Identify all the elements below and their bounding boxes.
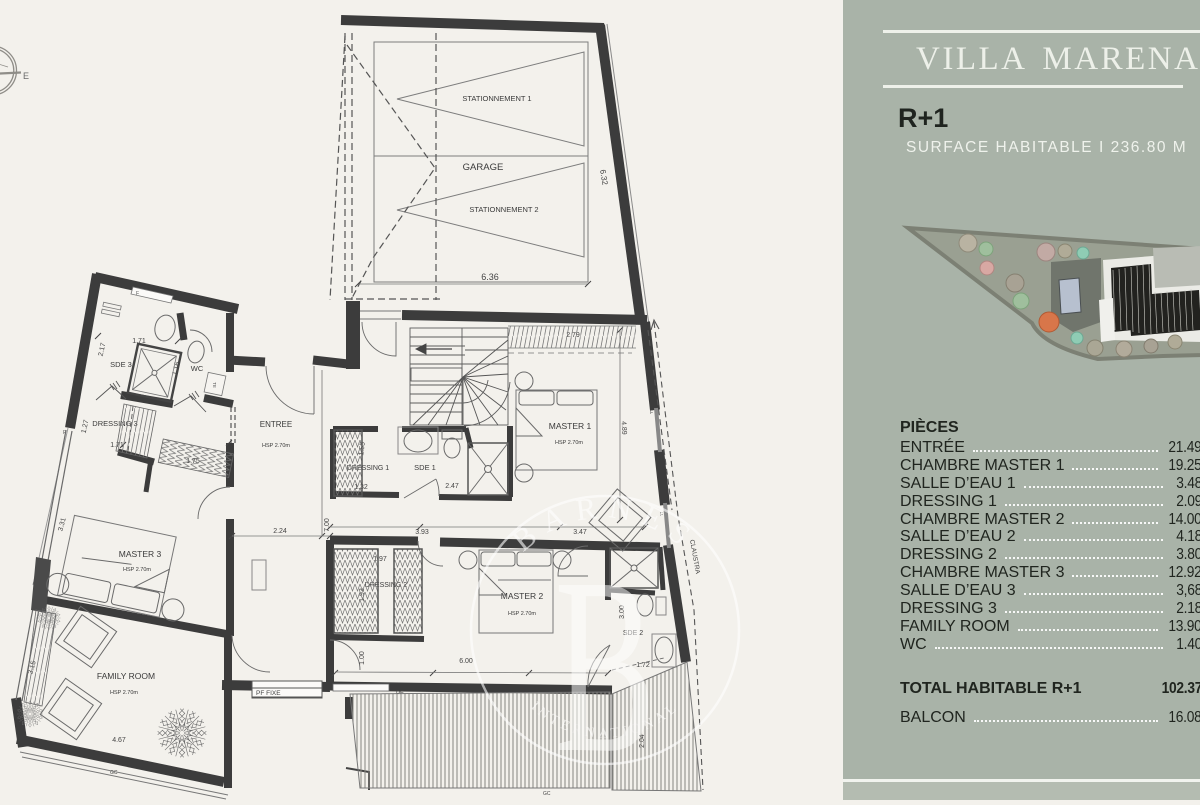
- svg-text:2.47: 2.47: [445, 483, 459, 490]
- svg-text:STATIONNEMENT 1: STATIONNEMENT 1: [462, 94, 531, 103]
- svg-text:1.00: 1.00: [359, 651, 366, 665]
- svg-text:HSP 2.70m: HSP 2.70m: [110, 690, 138, 696]
- svg-text:HSP 2.70m: HSP 2.70m: [262, 443, 290, 449]
- svg-text:E: E: [23, 71, 29, 81]
- svg-text:ENTREE: ENTREE: [260, 420, 292, 429]
- svg-text:SDE 1: SDE 1: [414, 463, 436, 472]
- svg-text:SDE 3: SDE 3: [110, 360, 132, 369]
- svg-text:MASTER 1: MASTER 1: [549, 421, 592, 431]
- svg-text:TE: TE: [212, 382, 217, 388]
- svg-text:MASTER 2: MASTER 2: [501, 591, 544, 601]
- svg-text:FAMILY ROOM: FAMILY ROOM: [97, 671, 155, 681]
- svg-text:B: B: [555, 526, 656, 800]
- svg-text:HSP 2.70m: HSP 2.70m: [555, 440, 583, 446]
- svg-text:MASTER 3: MASTER 3: [119, 549, 162, 559]
- svg-text:GC: GC: [543, 791, 551, 797]
- svg-text:HSP 2.70m: HSP 2.70m: [123, 567, 151, 573]
- svg-text:HSP 2.70m: HSP 2.70m: [508, 611, 536, 617]
- svg-text:F: F: [650, 410, 653, 416]
- svg-text:PF FIXE: PF FIXE: [256, 690, 281, 697]
- svg-text:STATIONNEMENT 2: STATIONNEMENT 2: [469, 205, 538, 214]
- svg-text:6.00: 6.00: [459, 658, 473, 665]
- svg-text:4.89: 4.89: [620, 421, 628, 435]
- svg-text:4.67: 4.67: [112, 737, 126, 744]
- svg-text:6.36: 6.36: [481, 272, 499, 282]
- svg-text:GARAGE: GARAGE: [463, 162, 504, 173]
- svg-text:F: F: [136, 291, 139, 297]
- svg-text:WC: WC: [191, 364, 204, 373]
- svg-text:2.24: 2.24: [273, 528, 287, 535]
